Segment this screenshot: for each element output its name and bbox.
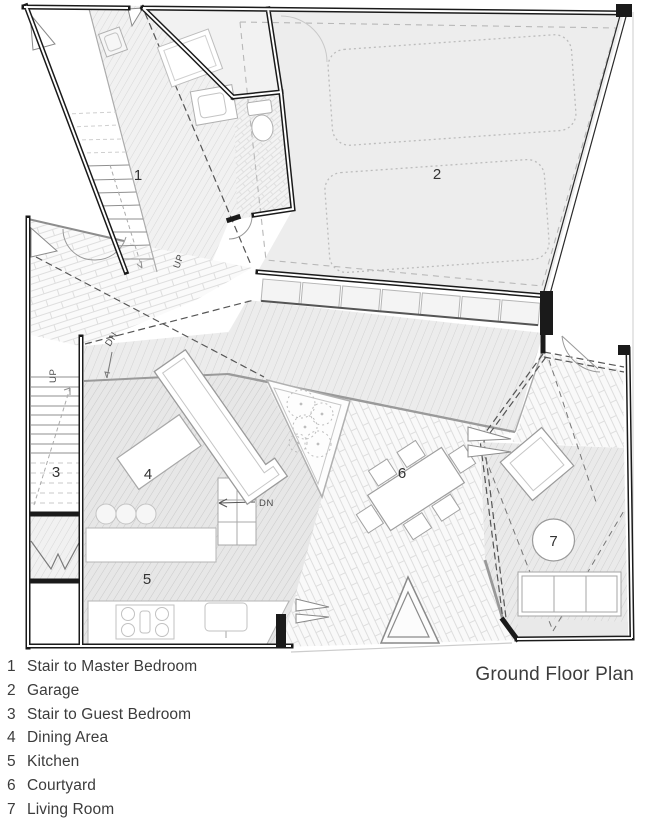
legend-number: 6 — [7, 777, 22, 795]
floor-plan-page: 1 2 3 4 5 6 7 UP UP DN DN 1 Stair to Mas… — [0, 0, 649, 831]
legend-number: 1 — [7, 658, 22, 676]
stair-to-guest-bedroom — [31, 377, 79, 505]
room-label-garage: 2 — [433, 166, 441, 183]
legend: 1 Stair to Master Bedroom 2 Garage 3 Sta… — [7, 658, 197, 825]
legend-item: 4 Dining Area — [7, 729, 197, 753]
room-label-stair-guest: 3 — [52, 464, 60, 481]
legend-label: Dining Area — [27, 729, 108, 747]
room-label-courtyard: 6 — [398, 465, 406, 482]
room-label-kitchen: 5 — [143, 571, 151, 588]
room-label-living: 7 — [549, 533, 557, 550]
legend-item: 1 Stair to Master Bedroom — [7, 658, 197, 682]
up-annotation-stair3: UP — [48, 369, 59, 383]
legend-label: Garage — [27, 682, 79, 700]
room-label-dining: 4 — [144, 466, 152, 483]
sink-vanity — [190, 85, 237, 126]
room-label-stair-master: 1 — [134, 167, 142, 184]
legend-label: Stair to Guest Bedroom — [27, 706, 191, 724]
legend-label: Courtyard — [27, 777, 96, 795]
legend-item: 3 Stair to Guest Bedroom — [7, 706, 197, 730]
legend-number: 4 — [7, 729, 22, 747]
legend-label: Living Room — [27, 801, 114, 819]
garage-floor — [258, 9, 624, 294]
legend-number: 2 — [7, 682, 22, 700]
floor-plan-drawing: 1 2 3 4 5 6 7 UP UP DN DN — [0, 0, 649, 660]
kitchen-island — [86, 528, 216, 562]
legend-number: 7 — [7, 801, 22, 819]
drawing-title: Ground Floor Plan — [475, 664, 634, 686]
legend-label: Stair to Master Bedroom — [27, 658, 197, 676]
legend-item: 5 Kitchen — [7, 753, 197, 777]
legend-item: 2 Garage — [7, 682, 197, 706]
kitchen-counter — [88, 601, 289, 644]
legend-item: 7 Living Room — [7, 801, 197, 825]
legend-number: 3 — [7, 706, 22, 724]
legend-label: Kitchen — [27, 753, 79, 771]
legend-number: 5 — [7, 753, 22, 771]
legend-item: 6 Courtyard — [7, 777, 197, 801]
dn-annotation-stair: DN — [259, 498, 274, 509]
living-sofa — [518, 572, 621, 616]
